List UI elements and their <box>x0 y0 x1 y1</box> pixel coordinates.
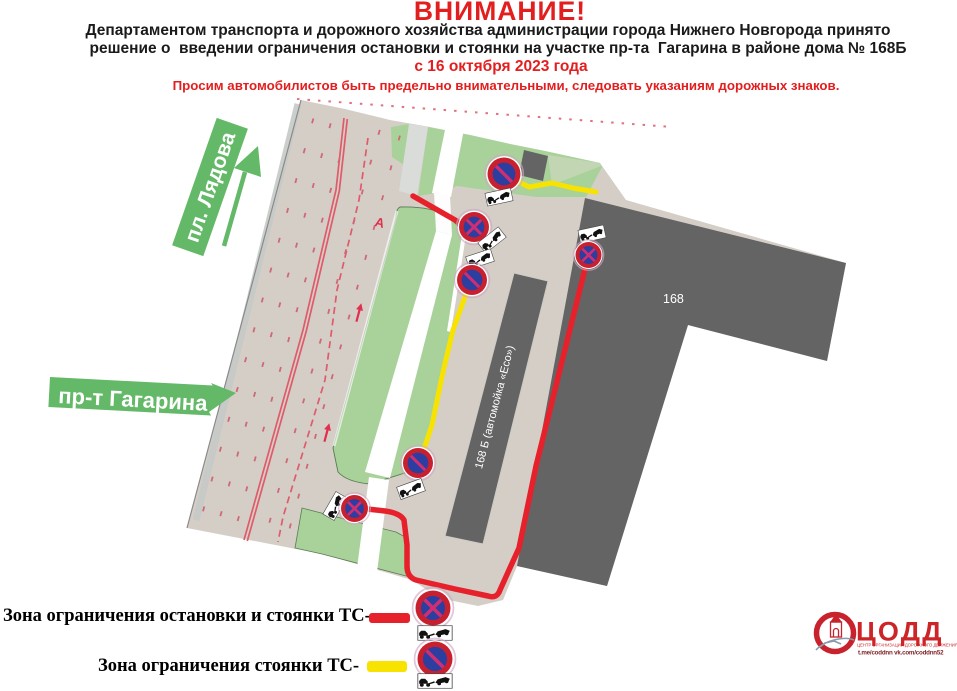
svg-text:Зона ограничения стоянки ТС-: Зона ограничения стоянки ТС- <box>98 656 359 676</box>
svg-text:Зона ограничения остановки и с: Зона ограничения остановки и стоянки ТС- <box>3 606 371 626</box>
svg-text:168: 168 <box>663 292 684 306</box>
svg-text:t.me/coddnn vk.com/coddnn52: t.me/coddnn vk.com/coddnn52 <box>858 650 944 657</box>
svg-text:ЦЕНТР ОРГАНИЗАЦИИ ДОРОЖНОГО ДВ: ЦЕНТР ОРГАНИЗАЦИИ ДОРОЖНОГО ДВИЖЕНИЯ <box>857 643 957 648</box>
